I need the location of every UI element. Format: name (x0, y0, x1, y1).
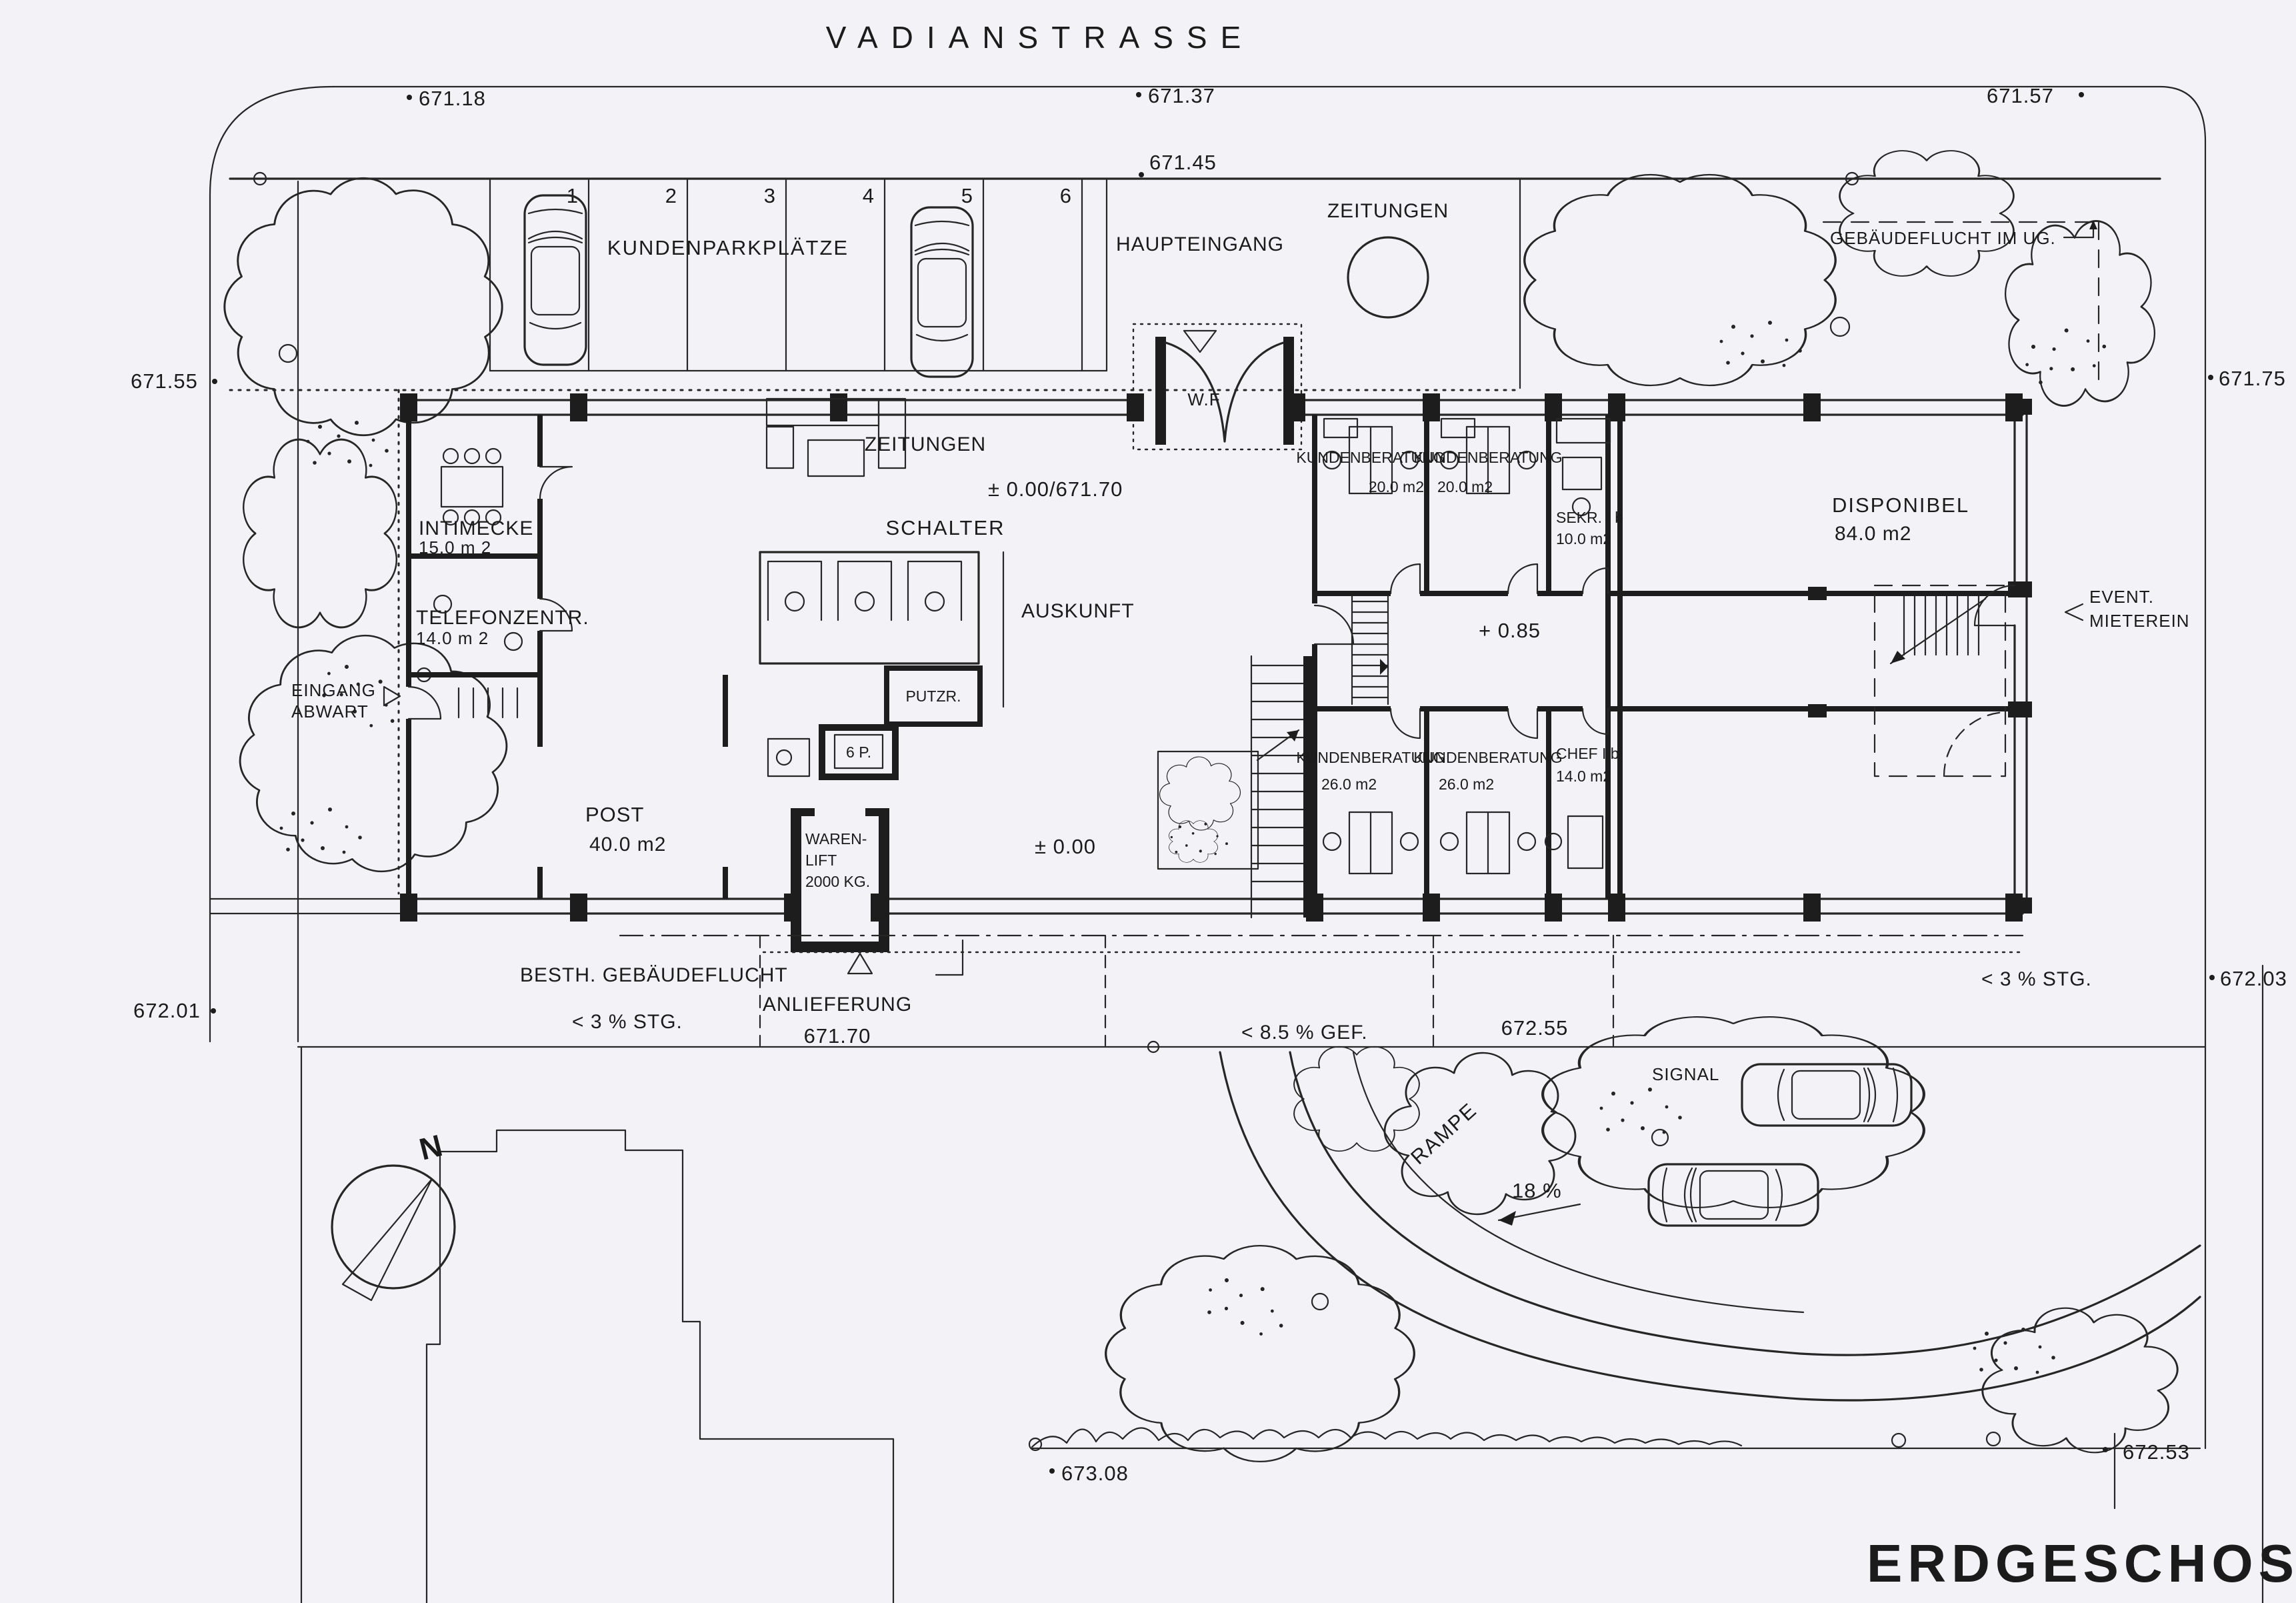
terrain-squiggle (1032, 1428, 1741, 1447)
leader-line (936, 940, 963, 975)
ramp-area: SIGNAL RAMPE 18 % (1076, 1017, 2200, 1482)
planting-dots (1720, 321, 1802, 367)
planting-dots (1973, 1328, 2055, 1374)
shrub-icon (1652, 1130, 1668, 1146)
double-wall (1608, 415, 1620, 899)
stall-number: 5 (961, 184, 973, 207)
room-area: 14.0 m 2 (416, 628, 489, 648)
existing-building-line-label: BESTH. GEBÄUDEFLUCHT (520, 964, 788, 986)
car-icon (1742, 1064, 1911, 1126)
counter-label: SCHALTER (885, 516, 1005, 539)
tree-icon (1294, 1047, 1419, 1151)
lift-label: 6 P. (846, 743, 871, 761)
tree-icon (1971, 1300, 2189, 1461)
main-stair (1251, 656, 1317, 918)
entrance-arrow-icon (384, 687, 400, 705)
room-area: 10.0 m2 (1556, 530, 1611, 547)
stall-number: 3 (764, 184, 776, 207)
room-label: PUTZR. (905, 687, 961, 705)
room-area: 14.0 m2 (1556, 767, 1611, 785)
planting-dots (2019, 317, 2112, 389)
elevation-e2: 672.03 (2220, 967, 2287, 990)
room-area: 15.0 m 2 (419, 537, 491, 557)
stool-icon (505, 633, 522, 650)
survey-node-icon (1987, 1432, 2000, 1446)
elevation-w2: 672.01 (133, 999, 201, 1022)
kiosk-circle-icon (1348, 237, 1428, 317)
caretaker-entrance-label: EINGANG (291, 680, 376, 700)
arrow-icon (1380, 659, 1388, 675)
building-line-ug-label: GEBÄUDEFLUCHT IM UG. (1830, 228, 2056, 248)
corridor-level-label: + 0.85 (1479, 619, 1541, 642)
arrow-icon (1499, 1211, 1516, 1226)
entry-level-label: ± 0.00/671.70 (988, 477, 1123, 501)
table-icon (441, 467, 503, 507)
tree-icon (1076, 1225, 1445, 1483)
arrow-icon (1287, 730, 1299, 741)
ramp-slope-label: 18 % (1512, 1179, 1562, 1202)
hall-level-label: ± 0.00 (1035, 835, 1096, 858)
teller-stool-icons (785, 592, 944, 611)
kiosk-label: ZEITUNGEN (1327, 200, 1449, 222)
south-site-band: BESTH. GEBÄUDEFLUCHT ANLIEFERUNG 671.70 … (520, 936, 2092, 1048)
door-arc-icon (540, 467, 572, 499)
southwest-drive-lines (210, 899, 409, 914)
car-icon (1649, 1164, 1818, 1226)
vestibule-label: W.F (1187, 389, 1220, 409)
survey-node-icon (1892, 1434, 1905, 1447)
parking-label: KUNDENPARKPLÄTZE (607, 236, 849, 259)
adjacent-building (427, 1130, 893, 1603)
passenger-lift: 6 P. (819, 724, 899, 780)
revolving-door-icon (1166, 343, 1283, 441)
stair-treads (459, 688, 517, 717)
east-wing: KUNDENBERATUNG 20.0 m2 KUNDENBERATUNG 20… (1296, 415, 2015, 899)
ramp-label: RAMPE (1406, 1098, 1481, 1169)
delivery-label: ANLIEFERUNG (763, 994, 912, 1016)
elevation-w1: 671.55 (131, 369, 198, 393)
arrow-icon (1891, 651, 1905, 663)
central-hall: ZEITUNGEN ± 0.00/671.70 SCHALTER AUSKUNF… (760, 399, 1317, 952)
east-window-band (2015, 407, 2027, 907)
goods-lift-label: WAREN- (805, 830, 867, 848)
door-arc-icon (409, 687, 441, 719)
delivery-marker-icon (848, 954, 872, 974)
slope-east-label: < 3 % STG. (1981, 968, 2092, 990)
room-label: CHEF I b (1556, 745, 1619, 762)
room-label: KUNDENBERATUNG (1413, 749, 1562, 766)
room-label: KUNDENBERATUNG (1413, 449, 1562, 466)
room-area: 20.0 m2 (1437, 478, 1493, 495)
car-icon (525, 195, 586, 365)
planting-dots (1200, 1270, 1293, 1342)
site-boundary-lines (210, 87, 2263, 1603)
vestibule-wall (1283, 337, 1294, 445)
ramp-edge-line (1353, 1052, 1803, 1312)
fixture-icon (777, 750, 791, 765)
drawing-sheet: GEBÄUDEFLUCHT IM UG. 1 2 3 4 5 6 KUNDENP… (0, 0, 2296, 1603)
planting-dots (307, 421, 389, 467)
entrance-plaza: HAUPTEINGANG ZEITUNGEN W.F (1116, 200, 1449, 449)
ramp-inner-curve (1290, 1052, 2200, 1355)
signal-label: SIGNAL (1652, 1064, 1719, 1084)
goods-lift: WAREN- LIFT 2000 KG. (791, 808, 889, 952)
main-entrance-label: HAUPTEINGANG (1116, 233, 1284, 255)
planting-dots (280, 808, 362, 854)
room-area: 40.0 m2 (589, 834, 666, 856)
door-arc-dashed-icon (1944, 712, 2005, 776)
shrub-icon (279, 345, 297, 362)
shrub-icon (1831, 317, 1849, 336)
room-area: 26.0 m2 (1439, 775, 1494, 793)
planting-dots (1600, 1088, 1682, 1134)
column-icon (1808, 704, 1827, 717)
elevation-n1: 671.37 (1148, 84, 1215, 107)
stall-number: 6 (1060, 184, 1072, 207)
wc-cell (768, 739, 809, 776)
tree-icon (243, 439, 396, 627)
elevation-labels: 671.18 671.37 671.45 671.57 671.55 671.7… (131, 84, 2287, 1485)
room-label: SEKR. I b (1556, 509, 1623, 526)
west-wing: INTIMECKE 15.0 m 2 TELEFONZENTR. 14.0 m … (291, 415, 725, 899)
elevation-nw: 671.18 (419, 87, 486, 110)
north-label: N (416, 1128, 447, 1167)
elevation-e1: 671.75 (2219, 367, 2286, 390)
elevation-ne: 671.57 (1987, 84, 2054, 107)
room-area: 26.0 m2 (1321, 775, 1377, 793)
street-name: VADIANSTRASSE (826, 20, 1255, 55)
floor-plan: GEBÄUDEFLUCHT IM UG. 1 2 3 4 5 6 KUNDENP… (0, 0, 2296, 1603)
arrow-left-icon (2065, 604, 2083, 620)
goods-lift-label: LIFT (805, 852, 837, 869)
goods-lift-label: 2000 KG. (805, 873, 870, 890)
compass-icon: N (332, 1128, 455, 1300)
room-label: POST (585, 803, 644, 826)
future-stair-dashed-outline (1875, 585, 2005, 776)
street-boundary-line (333, 87, 2205, 1448)
entrance-arrow-icon (1184, 331, 1216, 352)
door-arc-icons (1315, 564, 1608, 738)
elevation-delivery: 671.70 (804, 1024, 871, 1048)
counter-outline (760, 552, 979, 663)
south-window-band (409, 899, 2023, 914)
room-area: 20.0 m2 (1369, 478, 1424, 495)
newspapers-label: ZEITUNGEN (865, 433, 986, 455)
elevation-mid: 672.55 (1501, 1016, 1569, 1040)
elevation-n2: 671.45 (1149, 151, 1217, 174)
titles: VADIANSTRASSE ERDGESCHOSS (826, 20, 2296, 1593)
room-area: 84.0 m2 (1835, 523, 1911, 545)
caretaker-entrance-label: ABWART (291, 701, 369, 721)
adjacent-building-outline (427, 1130, 893, 1603)
parking-stall-lines (490, 179, 1107, 371)
elevation-s1: 673.08 (1061, 1462, 1129, 1485)
tree-icon (206, 605, 540, 902)
information-label: AUSKUNFT (1021, 600, 1135, 622)
parking-area: 1 2 3 4 5 6 KUNDENPARKPLÄTZE (490, 179, 1107, 377)
stall-number: 4 (863, 184, 875, 207)
tenant-entrance-label: EVENT. (2089, 587, 2154, 607)
plan-title: ERDGESCHOSS (1867, 1534, 2296, 1593)
chair-icons (443, 449, 501, 525)
stall-number: 2 (665, 184, 677, 207)
disponibel-room: DISPONIBEL 84.0 m2 EVENT. MIETEREIN (1808, 493, 2190, 776)
room-label: TELEFONZENTR. (416, 607, 589, 629)
tenant-entrance-label: MIETEREIN (2089, 611, 2190, 631)
shrub-icon (1312, 1294, 1328, 1310)
car-icon (911, 207, 973, 377)
corridor-stair (1352, 596, 1388, 704)
vestibule-wall (1155, 337, 1166, 445)
elevation-s2: 672.53 (2123, 1440, 2190, 1464)
slope-mid-label: < 8.5 % GEF. (1241, 1022, 1368, 1044)
room-label: INTIMECKE (419, 517, 533, 539)
tree-icon (1840, 151, 2014, 276)
room-label: DISPONIBEL (1832, 493, 1969, 517)
planter-square (1151, 749, 1258, 869)
tree-icon (1525, 175, 1835, 385)
stair-direction-line (1891, 599, 1985, 663)
column-icon (1808, 587, 1827, 600)
tree-icon (1360, 1032, 1600, 1236)
slope-west-label: < 3 % STG. (572, 1011, 683, 1033)
